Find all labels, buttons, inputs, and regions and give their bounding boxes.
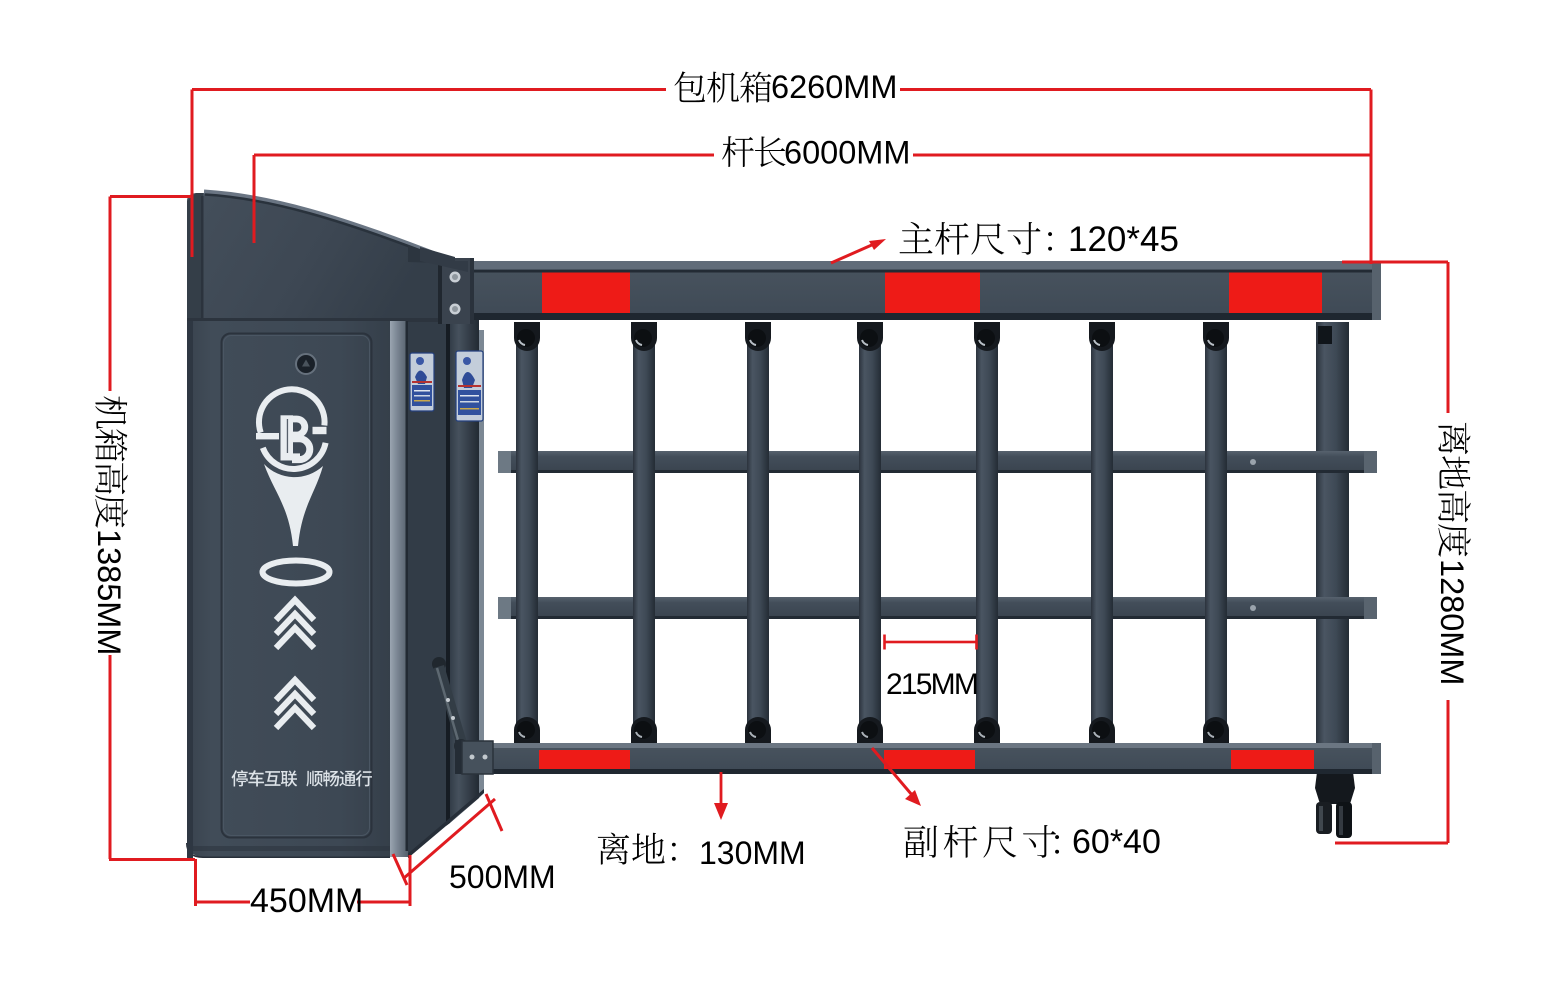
svg-text:120*45: 120*45: [1068, 220, 1179, 259]
svg-text:500MM: 500MM: [449, 859, 556, 895]
svg-text:6000MM: 6000MM: [784, 135, 910, 171]
svg-text:450MM: 450MM: [250, 882, 363, 920]
svg-text:1280MM: 1280MM: [1434, 559, 1470, 685]
svg-text:6260MM: 6260MM: [771, 69, 897, 105]
svg-text:130MM: 130MM: [699, 835, 806, 871]
svg-text:215MM: 215MM: [886, 668, 977, 701]
svg-text:60*40: 60*40: [1072, 823, 1161, 861]
svg-text:1385MM: 1385MM: [91, 529, 127, 655]
